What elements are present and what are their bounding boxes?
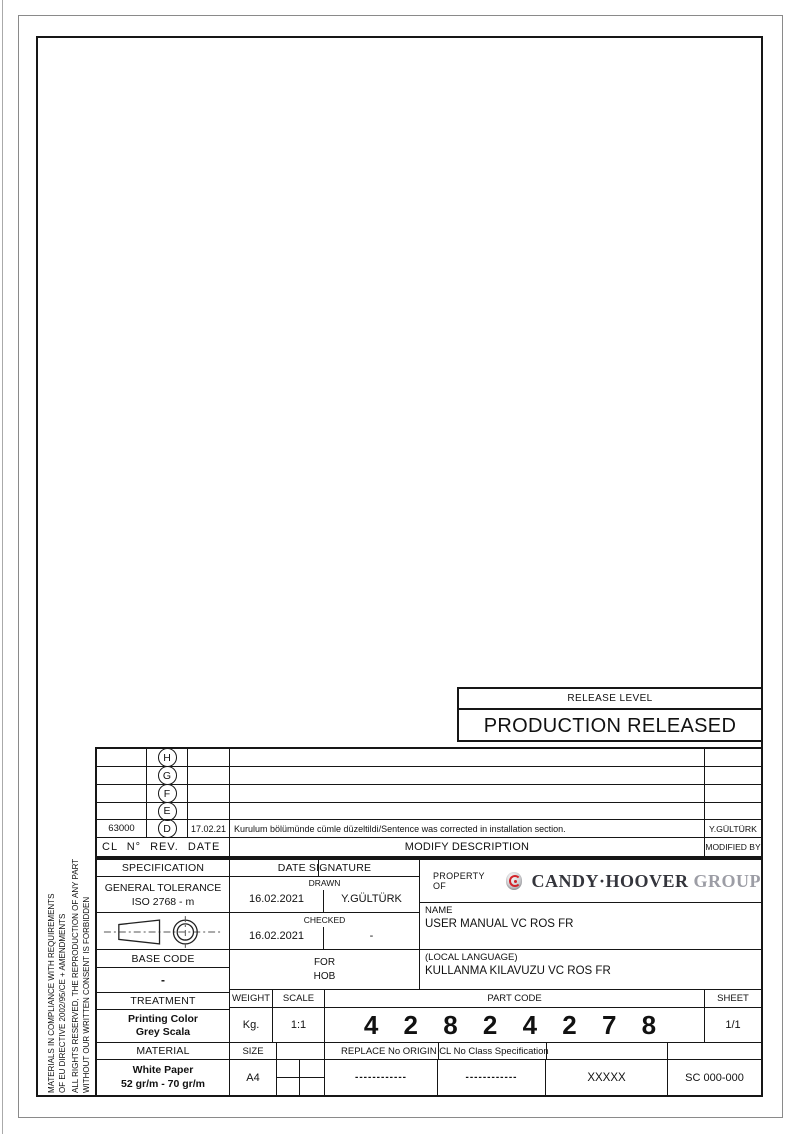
property-of-cell: PROPERTY OF CANDY·HOOVERGROUP xyxy=(420,860,761,903)
rev-by-cell xyxy=(705,767,761,785)
size-value: A4 xyxy=(230,1060,277,1095)
class-value: XXXXX xyxy=(546,1060,668,1095)
rev-desc-cell xyxy=(230,749,705,767)
local-language-value: KULLANMA KILAVUZU VC ROS FR xyxy=(420,965,761,977)
compliance-line: MATERIALS IN COMPLIANCE WITH REQUIREMENT… xyxy=(47,843,58,1093)
compliance-line: OF EU DIRECTIVE 2002/95/CE + AMENDMENTS xyxy=(58,843,69,1093)
drawing-sheet-page: { "release_level": { "label": "RELEASE L… xyxy=(0,0,802,1134)
for-value: HOB xyxy=(314,970,336,984)
scale-value: 1:1 xyxy=(273,1008,325,1043)
rev-desc-cell xyxy=(230,785,705,803)
size-grid-cell xyxy=(277,1078,300,1095)
treatment-value: Printing Color Grey Scala xyxy=(97,1010,230,1043)
brand-wordmark: CANDY·HOOVERGROUP xyxy=(531,871,761,892)
treatment-header: TREATMENT xyxy=(97,993,230,1010)
rev-desc-cell: Kurulum bölümünde cümle düzeltildi/Sente… xyxy=(230,820,705,838)
drawn-by: Y.GÜLTÜRK xyxy=(324,887,419,911)
name-value: USER MANUAL VC ROS FR xyxy=(420,918,761,930)
rev-desc-cell xyxy=(230,767,705,785)
size-grid-cell xyxy=(300,1078,325,1095)
size-grid-cell xyxy=(277,1060,300,1078)
rev-circle: H xyxy=(158,748,177,767)
window-edge-line xyxy=(2,0,3,1134)
rev-letter-cell: E xyxy=(147,803,188,820)
candy-hoover-logo-icon xyxy=(506,872,523,890)
rev-date-cell: 17.02.21 xyxy=(188,820,230,838)
size-spare-cell xyxy=(277,1043,325,1060)
rev-date-cell xyxy=(188,785,230,803)
replace-origin-header-cell: REPLACE No ORIGIN CL No Class Specificat… xyxy=(325,1043,668,1060)
weight-header: WEIGHT xyxy=(230,990,273,1008)
rev-letter-cell: F xyxy=(147,785,188,803)
rev-date-cell xyxy=(188,749,230,767)
origin-value: ------------ xyxy=(438,1060,546,1095)
rev-circle: F xyxy=(158,784,177,803)
rev-circle: E xyxy=(158,802,177,821)
rev-by-cell xyxy=(705,803,761,820)
name-label: NAME xyxy=(420,903,761,918)
rev-letter-cell: G xyxy=(147,767,188,785)
rev-cl-cell xyxy=(97,785,147,803)
scale-header: SCALE xyxy=(273,990,325,1008)
local-language-cell: (LOCAL LANGUAGE) KULLANMA KILAVUZU VC RO… xyxy=(420,950,761,990)
spec-code-value: SC 000-000 xyxy=(668,1060,761,1095)
revision-header-by: MODIFIED BY xyxy=(705,838,761,856)
base-code-value: - xyxy=(97,968,230,993)
compliance-line: ALL RIGHTS RESERVED, THE REPRODUCTION OF… xyxy=(71,843,82,1093)
part-code-value: 4 2 8 2 4 2 7 8 xyxy=(325,1008,705,1043)
sheet-header: SHEET xyxy=(705,990,761,1008)
release-level-box: RELEASE LEVEL PRODUCTION RELEASED xyxy=(457,687,763,742)
property-of-label: PROPERTY OF xyxy=(433,871,497,891)
weight-value: Kg. xyxy=(230,1008,273,1043)
revision-header-description: MODIFY DESCRIPTION xyxy=(230,838,705,856)
local-language-label: (LOCAL LANGUAGE) xyxy=(420,950,761,965)
replace-value: ------------ xyxy=(325,1060,438,1095)
for-header: FOR xyxy=(314,956,335,970)
replace-spare-cell xyxy=(668,1043,761,1060)
specification-header: SPECIFICATION xyxy=(97,860,230,877)
projection-symbol-cell xyxy=(97,913,230,950)
first-angle-projection-icon xyxy=(97,913,229,950)
title-block: SPECIFICATION GENERAL TOLERANCE ISO 2768… xyxy=(95,858,763,1097)
material-value: White Paper 52 gr/m - 70 gr/m xyxy=(97,1060,230,1095)
rev-cl-cell: 63000 xyxy=(97,820,147,838)
drawn-row: DRAWN 16.02.2021 Y.GÜLTÜRK xyxy=(230,877,420,913)
size-grid-cell xyxy=(300,1060,325,1078)
rev-letter-cell: H xyxy=(147,749,188,767)
material-header: MATERIAL xyxy=(97,1043,230,1060)
rev-by-cell xyxy=(705,785,761,803)
rev-by-cell xyxy=(705,749,761,767)
release-level-label: RELEASE LEVEL xyxy=(459,689,761,710)
rev-date-cell xyxy=(188,767,230,785)
checked-by: - xyxy=(324,924,419,948)
revision-table: H G F E 63000 D 17.02.21 Kurulum bölümün… xyxy=(95,747,763,858)
name-cell: NAME USER MANUAL VC ROS FR xyxy=(420,903,761,950)
rev-by-cell: Y.GÜLTÜRK xyxy=(705,820,761,838)
sheet-value: 1/1 xyxy=(705,1008,761,1043)
rev-desc-cell xyxy=(230,803,705,820)
rev-circle: G xyxy=(158,766,177,785)
rev-cl-cell xyxy=(97,803,147,820)
rev-circle: D xyxy=(158,819,177,838)
signature-header-divider xyxy=(318,860,319,877)
revision-header-left: CL N° REV. DATE xyxy=(97,838,230,856)
compliance-line: WITHOUT OUR WRITTEN CONSENT IS FORBIDDEN xyxy=(82,843,93,1093)
part-code-header: PART CODE xyxy=(325,990,705,1008)
for-block: FOR HOB xyxy=(230,950,420,990)
rev-letter-cell: D xyxy=(147,820,188,838)
replace-origin-header: REPLACE No ORIGIN CL No Class Specificat… xyxy=(341,1043,549,1060)
release-status: PRODUCTION RELEASED xyxy=(459,710,761,742)
compliance-notes: MATERIALS IN COMPLIANCE WITH REQUIREMENT… xyxy=(47,843,92,1093)
rev-date-cell xyxy=(188,803,230,820)
rev-cl-cell xyxy=(97,767,147,785)
general-tolerance: GENERAL TOLERANCE ISO 2768 - m xyxy=(97,877,230,913)
checked-row: CHECKED 16.02.2021 - xyxy=(230,913,420,950)
base-code-header: BASE CODE xyxy=(97,950,230,968)
rev-cl-cell xyxy=(97,749,147,767)
checked-date: 16.02.2021 xyxy=(230,924,323,948)
drawn-date: 16.02.2021 xyxy=(230,887,323,911)
size-header: SIZE xyxy=(230,1043,277,1060)
date-signature-header: DATE SIGNATURE xyxy=(230,860,420,877)
brand-suffix: GROUP xyxy=(694,871,762,891)
